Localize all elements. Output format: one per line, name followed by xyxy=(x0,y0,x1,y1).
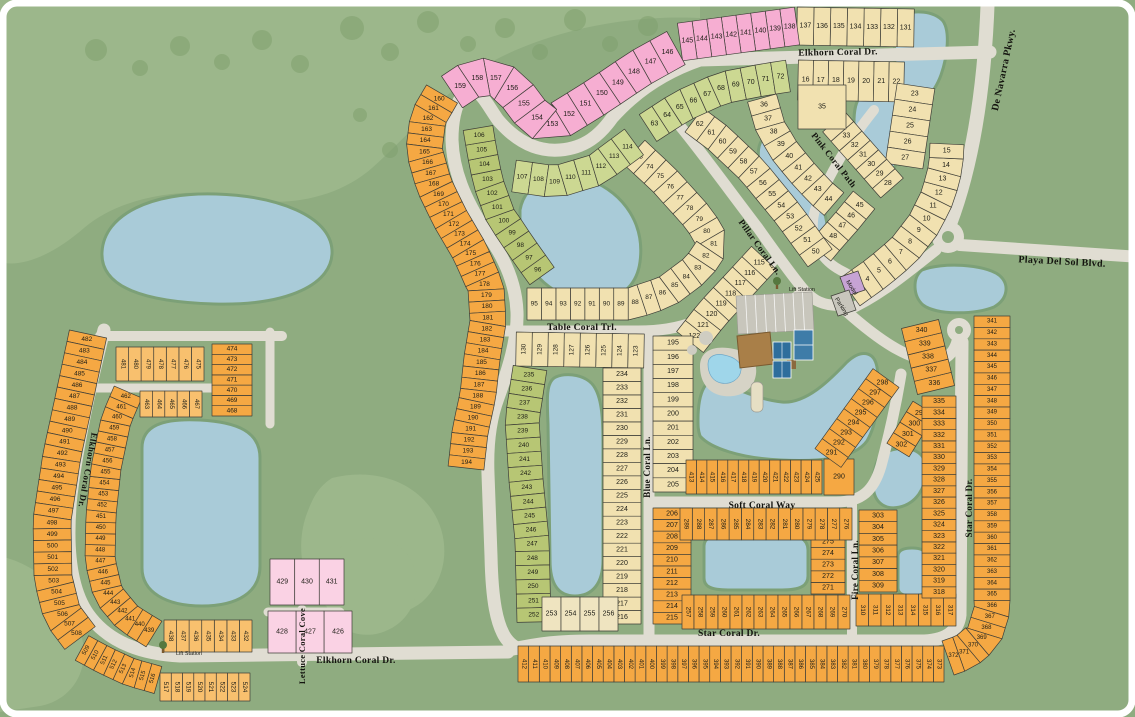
lot-number-38: 38 xyxy=(770,129,778,136)
lot-number-483: 483 xyxy=(79,348,90,355)
lot-number-290: 290 xyxy=(833,474,845,481)
lift-station-label: Lift Station xyxy=(176,651,202,657)
lot-number-463: 463 xyxy=(143,399,149,410)
lot-number-416: 416 xyxy=(719,472,726,483)
lot-number-153: 153 xyxy=(547,121,559,128)
lot-number-385: 385 xyxy=(808,659,814,670)
lot-number-280: 280 xyxy=(793,519,800,530)
lot-number-308: 308 xyxy=(872,571,884,578)
lot-number-151: 151 xyxy=(580,101,592,108)
lot-number-85: 85 xyxy=(671,282,679,289)
lot-number-205: 205 xyxy=(667,481,679,488)
lot-number-358: 358 xyxy=(987,512,998,518)
lot-number-295: 295 xyxy=(855,410,867,417)
lot-number-346: 346 xyxy=(987,376,998,382)
lot-number-345: 345 xyxy=(987,364,998,370)
lot-number-48: 48 xyxy=(829,233,837,240)
lot-number-502: 502 xyxy=(47,566,58,573)
lot-strip-257-270: 2572582592602612622632642652662672682692… xyxy=(682,595,850,629)
lot-number-283: 283 xyxy=(756,519,763,530)
street-label: Lettuce Coral Cove xyxy=(297,608,307,684)
lot-number-143: 143 xyxy=(711,34,723,41)
lot-number-25: 25 xyxy=(906,123,914,130)
lot-number-132: 132 xyxy=(883,24,895,31)
lot-number-439: 439 xyxy=(144,628,155,634)
lot-number-392: 392 xyxy=(733,659,739,670)
lot-number-165: 165 xyxy=(419,148,430,155)
lot-number-200: 200 xyxy=(667,411,679,418)
lot-number-282: 282 xyxy=(769,519,776,530)
lot-number-319: 319 xyxy=(933,578,945,585)
lot-number-341: 341 xyxy=(987,319,998,325)
lot-number-321: 321 xyxy=(933,555,945,562)
lot-number-482: 482 xyxy=(81,336,92,343)
lot-number-428: 428 xyxy=(276,629,288,636)
lot-number-300: 300 xyxy=(908,420,920,427)
lot-number-269: 269 xyxy=(829,607,836,618)
lot-number-108: 108 xyxy=(533,176,544,183)
lot-number-477: 477 xyxy=(170,359,176,370)
lot-number-364: 364 xyxy=(987,580,998,586)
lot-number-314: 314 xyxy=(909,605,916,616)
lot-number-376: 376 xyxy=(904,659,910,670)
lot-number-24: 24 xyxy=(909,107,917,114)
lot-number-92: 92 xyxy=(574,301,582,308)
lot-strip-373-412: 3733743753763773783793803813823833843853… xyxy=(518,646,944,682)
lot-number-189: 189 xyxy=(470,403,481,410)
lot-number-476: 476 xyxy=(182,359,188,370)
lot-number-109: 109 xyxy=(549,178,560,185)
lot-number-287: 287 xyxy=(707,519,714,530)
lot-strip-35: 35 xyxy=(798,85,846,129)
lot-number-183: 183 xyxy=(480,337,491,344)
lot-number-125: 125 xyxy=(600,345,607,356)
lot-number-347: 347 xyxy=(987,387,998,393)
lot-number-36: 36 xyxy=(760,102,768,109)
street-label: Blue Coral Ln. xyxy=(642,436,652,497)
lot-number-412: 412 xyxy=(520,659,526,670)
lot-number-69: 69 xyxy=(732,82,740,89)
lot-number-99: 99 xyxy=(508,230,516,237)
lot-number-499: 499 xyxy=(47,531,58,538)
lot-number-106: 106 xyxy=(474,132,485,139)
lot-number-60: 60 xyxy=(719,139,727,146)
lot-strip-517-524: 517518519520521522523524 xyxy=(160,673,250,701)
lot-number-222: 222 xyxy=(616,533,628,540)
lot-number-133: 133 xyxy=(866,24,878,31)
lot-strip-310-317: 310311312313314315316317 xyxy=(856,594,956,626)
lot-number-21: 21 xyxy=(877,78,885,85)
tree-icon xyxy=(252,30,272,50)
lot-number-431: 431 xyxy=(326,579,338,586)
lot-number-26: 26 xyxy=(904,139,912,146)
lot-number-148: 148 xyxy=(628,69,640,76)
lot-number-202: 202 xyxy=(667,439,679,446)
lot-number-126: 126 xyxy=(584,344,591,355)
lot-number-130: 130 xyxy=(520,343,527,354)
lot-number-315: 315 xyxy=(921,605,928,616)
lot-number-273: 273 xyxy=(822,562,834,569)
lot-number-457: 457 xyxy=(105,447,116,453)
lot-number-128: 128 xyxy=(552,344,559,355)
lot-number-504: 504 xyxy=(51,589,62,596)
lot-number-402: 402 xyxy=(627,659,633,670)
lot-number-184: 184 xyxy=(478,348,489,355)
lot-number-62: 62 xyxy=(696,121,704,128)
lot-number-456: 456 xyxy=(102,458,113,464)
lot-number-342: 342 xyxy=(987,330,998,336)
lake xyxy=(704,534,808,590)
lot-number-19: 19 xyxy=(847,78,855,85)
lot-number-262: 262 xyxy=(745,607,752,618)
lot-number-318: 318 xyxy=(933,589,945,596)
lot-number-398: 398 xyxy=(669,659,675,670)
lot-number-313: 313 xyxy=(896,605,903,616)
lot-number-193: 193 xyxy=(462,448,473,455)
lot-number-37: 37 xyxy=(764,115,772,122)
lot-number-61: 61 xyxy=(707,130,715,137)
lot-number-169: 169 xyxy=(433,191,444,198)
lot-number-47: 47 xyxy=(838,223,846,230)
lot-number-185: 185 xyxy=(476,359,487,366)
lot-number-45: 45 xyxy=(856,202,864,209)
lot-number-486: 486 xyxy=(72,382,83,389)
lot-number-256: 256 xyxy=(603,611,615,618)
lot-number-411: 411 xyxy=(531,659,537,669)
lot-number-8: 8 xyxy=(908,239,912,246)
lot-number-304: 304 xyxy=(872,524,884,531)
lot-number-131: 131 xyxy=(900,24,912,31)
lot-number-481: 481 xyxy=(119,359,125,370)
lot-number-496: 496 xyxy=(50,496,61,503)
lot-number-455: 455 xyxy=(100,469,111,475)
lot-number-505: 505 xyxy=(54,600,65,607)
lot-number-323: 323 xyxy=(933,533,945,540)
lot-number-331: 331 xyxy=(933,443,945,450)
lot-number-393: 393 xyxy=(723,659,729,670)
lot-number-43: 43 xyxy=(814,186,822,193)
street-label: Fire Coral Ln. xyxy=(850,540,860,600)
lot-number-176: 176 xyxy=(470,261,481,268)
roundabout-island xyxy=(955,326,963,334)
lot-number-461: 461 xyxy=(116,404,127,410)
lake xyxy=(142,420,260,606)
tree-icon xyxy=(382,142,398,158)
lot-number-66: 66 xyxy=(690,97,698,104)
lot-number-264: 264 xyxy=(769,607,776,618)
lot-number-195: 195 xyxy=(667,340,679,347)
lot-number-245: 245 xyxy=(524,512,535,519)
lot-number-302: 302 xyxy=(895,441,907,448)
street-label: Star Coral Dr. xyxy=(964,479,974,538)
lift-station-tree-icon xyxy=(159,641,167,649)
lot-number-328: 328 xyxy=(933,477,945,484)
lot-number-378: 378 xyxy=(882,659,888,670)
lot-number-426: 426 xyxy=(332,629,344,636)
lot-number-218: 218 xyxy=(616,587,628,594)
lot-number-413: 413 xyxy=(688,472,695,483)
lot-number-326: 326 xyxy=(933,499,945,506)
lot-number-286: 286 xyxy=(720,519,727,530)
lot-number-29: 29 xyxy=(876,170,884,177)
lot-number-68: 68 xyxy=(717,85,725,92)
lot-number-241: 241 xyxy=(519,456,530,463)
lot-number-390: 390 xyxy=(755,659,761,670)
lot-number-517: 517 xyxy=(162,682,169,693)
lot-number-88: 88 xyxy=(631,299,639,306)
lot-number-292: 292 xyxy=(833,440,845,447)
lot-number-500: 500 xyxy=(47,543,58,550)
tree-icon xyxy=(460,36,476,52)
lot-number-351: 351 xyxy=(987,433,998,439)
tree-icon xyxy=(340,16,364,40)
lot-number-400: 400 xyxy=(648,659,654,670)
lot-number-203: 203 xyxy=(667,453,679,460)
lot-number-460: 460 xyxy=(112,415,123,421)
lot-number-76: 76 xyxy=(667,184,675,191)
lot-number-237: 237 xyxy=(519,400,530,407)
lot-number-116: 116 xyxy=(744,270,755,277)
tree-icon xyxy=(532,44,548,60)
tree-icon xyxy=(170,36,190,56)
lot-number-466: 466 xyxy=(180,399,186,410)
lot-number-178: 178 xyxy=(479,281,490,288)
lot-number-206: 206 xyxy=(666,510,678,517)
lot-number-409: 409 xyxy=(552,659,558,670)
lot-number-360: 360 xyxy=(987,535,998,541)
lot-number-164: 164 xyxy=(420,137,431,144)
lot-number-263: 263 xyxy=(757,607,764,618)
lot-number-30: 30 xyxy=(867,161,875,168)
lot-number-225: 225 xyxy=(616,493,628,500)
lot-number-97: 97 xyxy=(525,254,533,261)
lot-number-301: 301 xyxy=(902,431,914,438)
lot-number-89: 89 xyxy=(617,301,625,308)
lot-number-293: 293 xyxy=(840,430,852,437)
lot-number-468: 468 xyxy=(227,407,238,414)
roundabout-island xyxy=(942,231,954,243)
street-label: Soft Coral Way xyxy=(729,501,796,511)
lot-number-194: 194 xyxy=(461,459,472,466)
lot-number-445: 445 xyxy=(100,580,111,586)
amenity-pad xyxy=(687,345,697,355)
lot-number-145: 145 xyxy=(681,38,693,45)
lot-number-272: 272 xyxy=(822,573,834,580)
lot-number-141: 141 xyxy=(740,30,752,37)
lot-number-324: 324 xyxy=(933,522,945,529)
lot-number-285: 285 xyxy=(732,519,739,530)
lot-number-470: 470 xyxy=(227,387,238,394)
lot-number-213: 213 xyxy=(666,592,678,599)
lot-number-294: 294 xyxy=(848,420,860,427)
lot-number-134: 134 xyxy=(850,24,862,31)
lot-number-524: 524 xyxy=(241,682,248,693)
lot-number-102: 102 xyxy=(487,190,498,197)
lot-number-268: 268 xyxy=(817,607,824,618)
lot-number-255: 255 xyxy=(584,611,596,618)
lot-number-240: 240 xyxy=(518,442,529,449)
lot-strip-429-431: 429430431 xyxy=(270,559,344,605)
lot-number-443: 443 xyxy=(110,600,121,606)
lot-number-261: 261 xyxy=(733,607,740,618)
lot-number-434: 434 xyxy=(217,631,224,642)
lot-number-13: 13 xyxy=(939,176,947,183)
street-label: Elkhorn Coral Dr. xyxy=(316,656,395,666)
lot-number-430: 430 xyxy=(301,579,313,586)
lot-number-363: 363 xyxy=(987,569,998,575)
lot-number-163: 163 xyxy=(421,126,432,133)
street-label: Elkhorn Coral Dr. xyxy=(798,47,878,58)
lot-number-57: 57 xyxy=(750,169,758,176)
lot-number-401: 401 xyxy=(638,659,644,670)
lot-number-80: 80 xyxy=(703,228,711,235)
lot-number-7: 7 xyxy=(899,249,903,256)
lot-number-121: 121 xyxy=(697,322,709,329)
lot-number-192: 192 xyxy=(464,437,475,444)
lot-number-160: 160 xyxy=(434,95,445,102)
lot-number-408: 408 xyxy=(563,659,569,670)
lot-number-362: 362 xyxy=(987,558,998,564)
lot-number-274: 274 xyxy=(822,550,834,557)
lot-number-223: 223 xyxy=(616,519,628,526)
lot-number-410: 410 xyxy=(542,659,548,670)
lot-number-168: 168 xyxy=(428,181,439,188)
lot-number-228: 228 xyxy=(616,452,628,459)
lot-strip-318-335: 3183193203213223233243253263273283293303… xyxy=(922,396,956,598)
lot-number-254: 254 xyxy=(565,611,577,618)
lot-number-492: 492 xyxy=(57,450,68,457)
lot-number-198: 198 xyxy=(667,382,679,389)
lot-number-297: 297 xyxy=(869,390,881,397)
lot-number-144: 144 xyxy=(696,36,708,43)
lot-number-230: 230 xyxy=(616,425,628,432)
lot-number-231: 231 xyxy=(616,412,628,419)
lot-number-353: 353 xyxy=(987,455,998,461)
lot-number-397: 397 xyxy=(680,659,686,670)
tree-icon xyxy=(602,36,618,52)
lot-number-298: 298 xyxy=(877,380,889,387)
lot-number-359: 359 xyxy=(987,524,998,530)
lot-number-95: 95 xyxy=(531,301,539,308)
lot-number-91: 91 xyxy=(588,301,596,308)
lot-number-52: 52 xyxy=(795,225,803,232)
lot-number-158: 158 xyxy=(471,75,483,82)
lot-number-316: 316 xyxy=(934,605,941,616)
lot-number-417: 417 xyxy=(730,472,737,483)
lot-number-20: 20 xyxy=(862,78,870,85)
lot-number-232: 232 xyxy=(616,398,628,405)
lot-number-423: 423 xyxy=(792,472,799,483)
lot-number-462: 462 xyxy=(121,394,132,400)
lot-number-386: 386 xyxy=(797,659,803,670)
lot-number-77: 77 xyxy=(676,194,684,201)
lot-number-63: 63 xyxy=(651,120,659,127)
lot-number-414: 414 xyxy=(698,472,705,483)
lot-number-447: 447 xyxy=(95,559,106,565)
lot-number-174: 174 xyxy=(460,240,471,247)
lot-number-104: 104 xyxy=(479,161,490,168)
lot-number-344: 344 xyxy=(987,353,998,359)
lot-number-338: 338 xyxy=(922,354,934,361)
lot-number-142: 142 xyxy=(725,32,737,39)
lot-number-368: 368 xyxy=(981,625,992,631)
lot-number-6: 6 xyxy=(888,258,892,265)
lot-number-480: 480 xyxy=(132,359,138,370)
lot-number-236: 236 xyxy=(521,386,532,393)
lot-number-41: 41 xyxy=(794,164,802,171)
lot-number-146: 146 xyxy=(662,49,674,56)
lot-number-5: 5 xyxy=(877,268,881,275)
tree-icon xyxy=(85,39,107,61)
lot-number-248: 248 xyxy=(527,555,538,562)
lot-number-441: 441 xyxy=(125,616,136,622)
lot-number-450: 450 xyxy=(96,525,107,531)
lot-number-162: 162 xyxy=(423,115,434,122)
lot-number-235: 235 xyxy=(523,372,534,379)
lot-number-437: 437 xyxy=(179,631,186,642)
lot-number-186: 186 xyxy=(475,370,486,377)
lot-number-123: 123 xyxy=(632,345,639,356)
tree-icon xyxy=(132,60,148,76)
lot-number-419: 419 xyxy=(751,472,758,483)
lot-number-271: 271 xyxy=(822,585,834,592)
lot-number-40: 40 xyxy=(785,153,793,160)
lot-number-250: 250 xyxy=(528,583,539,590)
lot-number-175: 175 xyxy=(465,250,476,257)
lot-number-50: 50 xyxy=(812,249,820,256)
lot-number-75: 75 xyxy=(657,173,665,180)
lot-number-252: 252 xyxy=(528,611,539,618)
lot-number-138: 138 xyxy=(784,24,796,31)
lot-number-367: 367 xyxy=(985,614,996,620)
lot-number-56: 56 xyxy=(759,180,767,187)
lot-number-307: 307 xyxy=(872,559,884,566)
lot-number-147: 147 xyxy=(645,59,657,66)
lot-number-399: 399 xyxy=(659,659,665,670)
lot-number-405: 405 xyxy=(595,659,601,670)
lot-number-379: 379 xyxy=(872,659,878,670)
lot-number-82: 82 xyxy=(702,253,710,260)
lot-strip-271-275: 271272273274275 xyxy=(811,536,845,594)
lot-number-253: 253 xyxy=(546,611,558,618)
lot-number-495: 495 xyxy=(51,485,62,492)
lot-number-4: 4 xyxy=(865,276,869,283)
lot-number-9: 9 xyxy=(917,227,921,234)
lot-number-31: 31 xyxy=(859,152,867,159)
tree-icon xyxy=(638,16,658,36)
lot-number-372: 372 xyxy=(948,653,959,659)
lot-number-278: 278 xyxy=(818,519,825,530)
lot-number-54: 54 xyxy=(777,202,785,209)
lot-number-288: 288 xyxy=(695,519,702,530)
lot-number-86: 86 xyxy=(659,290,667,297)
lot-number-64: 64 xyxy=(663,112,671,119)
lot-number-114: 114 xyxy=(622,143,633,150)
lot-number-233: 233 xyxy=(616,385,628,392)
lot-number-523: 523 xyxy=(230,682,237,693)
lot-number-110: 110 xyxy=(565,174,576,181)
tree-icon xyxy=(381,43,399,61)
lot-number-479: 479 xyxy=(144,359,150,370)
lot-number-520: 520 xyxy=(196,682,203,693)
lot-strip-131-137: 131132133134135136137 xyxy=(797,7,915,47)
lot-number-16: 16 xyxy=(802,77,810,84)
lot-number-224: 224 xyxy=(616,506,628,513)
lot-number-173: 173 xyxy=(454,231,465,238)
lot-number-124: 124 xyxy=(616,345,623,356)
lot-number-251: 251 xyxy=(528,597,539,604)
lot-number-289: 289 xyxy=(683,519,690,530)
